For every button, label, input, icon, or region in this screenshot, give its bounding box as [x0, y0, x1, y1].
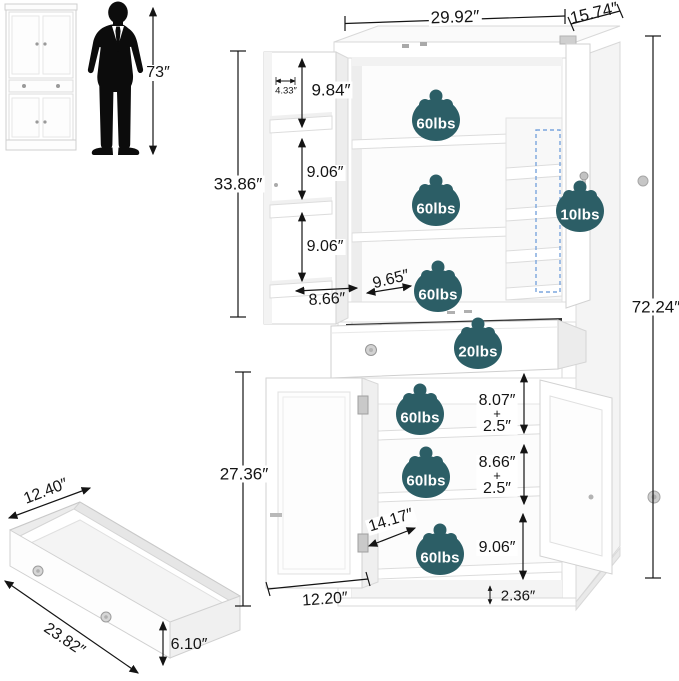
dim-label-cabinet-width: 29.92″	[428, 8, 481, 27]
hinge-icon	[358, 396, 368, 414]
closed-cabinet-icon	[5, 4, 77, 150]
door-knob	[638, 176, 648, 186]
badge-label-drawer: 20lbs	[458, 344, 497, 361]
dim-label-upper-interior-height: 33.86″	[212, 176, 265, 193]
dim-label-upper-door-width: 8.66″	[308, 291, 346, 309]
badge-label-door-rack: 10lbs	[560, 207, 599, 224]
main-cabinet-illustration	[264, 26, 660, 610]
dim-label-base-height: 2.36″	[501, 589, 536, 604]
dim-label-lower-interior-height: 27.36″	[218, 466, 271, 483]
dim-label-overall-height: 72.24″	[630, 299, 679, 316]
dim-label-lower-door-width: 12.20″	[302, 590, 349, 609]
dim-label-lower-gap-2: 8.66″ + 2.5″	[477, 455, 518, 497]
badge-label-lower-shelf-3: 60lbs	[420, 550, 459, 567]
door-handle	[270, 513, 282, 517]
hinge-icon	[358, 534, 368, 552]
dim-label-lower-gap-1: 8.07″ + 2.5″	[477, 393, 518, 435]
dim-label-door-tray-depth: 4.33″	[275, 86, 297, 96]
dim-label-drawer-height: 6.10″	[171, 637, 208, 653]
door-knob	[580, 172, 588, 180]
diagram-graphics	[0, 0, 679, 681]
badge-label-upper-shelf-1: 60lbs	[416, 116, 455, 133]
dim-label-tray-gap-3: 9.06″	[305, 239, 346, 255]
lower-left-door-open	[266, 378, 378, 588]
badge-label-upper-shelf-3: 60lbs	[418, 287, 457, 304]
badge-label-upper-shelf-2: 60lbs	[416, 201, 455, 218]
man-silhouette-icon	[88, 2, 143, 156]
badge-label-lower-shelf-1: 60lbs	[400, 410, 439, 427]
dim-label-tray-gap-1: 9.84″	[309, 82, 352, 99]
badge-label-lower-shelf-2: 60lbs	[406, 473, 445, 490]
lower-right-door-open	[540, 380, 660, 574]
dim-label-tray-gap-2: 9.06″	[305, 165, 346, 181]
product-dimension-diagram: 29.92″ 15.74″ 72.24″ 73″ 33.86″ 4.33″ 9.…	[0, 0, 679, 681]
dim-label-lower-gap-3: 9.06″	[477, 540, 518, 556]
door-knob	[274, 183, 278, 187]
dim-label-person-height: 73″	[144, 65, 171, 81]
